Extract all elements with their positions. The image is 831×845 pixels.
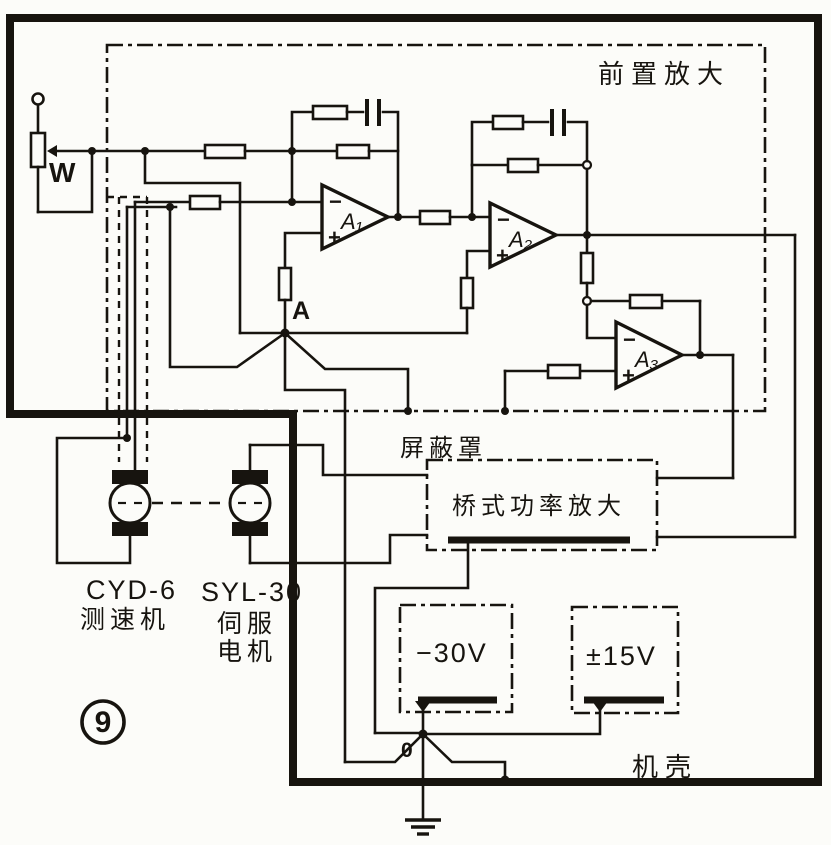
node-a-label: A <box>292 297 310 325</box>
figure-number: 9 <box>95 706 112 739</box>
circuit-schematic: − + A₁ − + A₂ <box>0 0 831 845</box>
neg30-label: −30V <box>416 638 488 668</box>
a2-label: A₂ <box>507 227 533 252</box>
motor-tach <box>110 470 150 536</box>
opamp-a1: − + A₁ <box>279 185 490 333</box>
pot-label: W <box>49 157 76 188</box>
pm15-label: ±15V <box>586 641 657 671</box>
a3-label: A₃ <box>633 347 659 372</box>
earth-ground-icon <box>405 820 441 834</box>
servo-name-line2: 电机 <box>217 638 277 666</box>
a1-label: A₁ <box>339 209 363 234</box>
a1-minus: − <box>329 189 342 214</box>
a1-plus: + <box>328 225 341 250</box>
a2-plus: + <box>496 243 509 268</box>
preamp-label: 前置放大 <box>598 59 730 89</box>
chassis-label: 机壳 <box>632 752 698 782</box>
chassis-outline <box>10 18 818 782</box>
potentiometer-w <box>31 94 92 213</box>
node-zero-label: 0 <box>401 739 413 762</box>
bridge-amp-label: 桥式功率放大 <box>452 493 626 520</box>
servo-model-label: SYL-30 <box>201 577 303 607</box>
tach-model-label: CYD-6 <box>86 575 177 605</box>
tach-name-label: 测速机 <box>80 606 170 634</box>
opamp-a3: − + A₃ <box>501 322 733 478</box>
a3-minus: − <box>623 327 636 352</box>
servo-name-line1: 伺服 <box>217 610 277 638</box>
shield-cover-label: 屏蔽罩 <box>400 435 487 462</box>
schematic-page: − + A₁ − + A₂ <box>0 0 831 845</box>
supply-neg30-box <box>400 605 512 733</box>
figure-number-badge: 9 <box>82 701 124 743</box>
motor-servo <box>230 445 427 563</box>
a2-minus: − <box>497 207 510 232</box>
a3-plus: + <box>622 363 635 388</box>
